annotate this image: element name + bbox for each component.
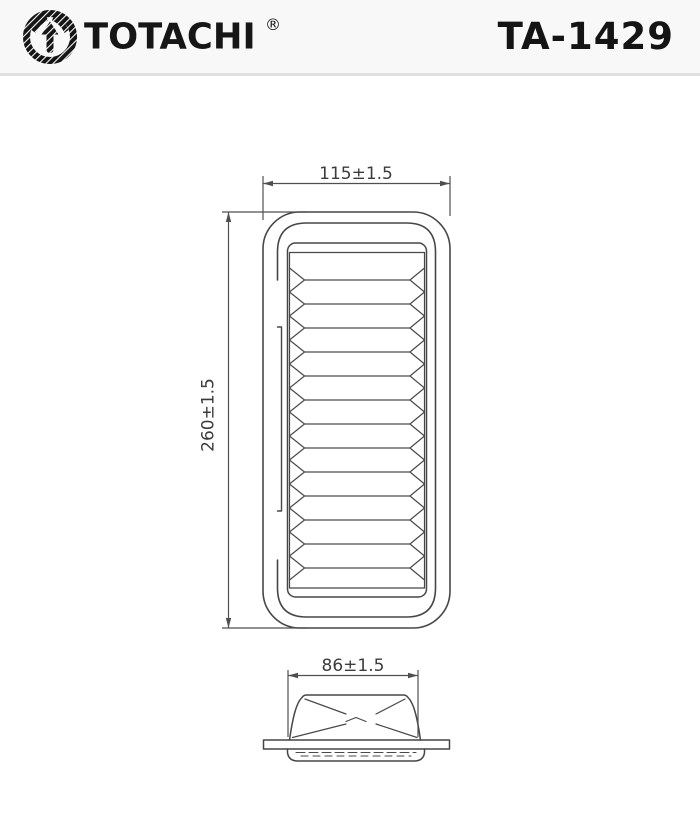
top-view xyxy=(263,212,450,628)
side-view-tray xyxy=(288,749,425,761)
totachi-emblem-icon xyxy=(22,9,78,65)
brand-name: TOTACHI xyxy=(84,19,256,55)
top-view-left-tab xyxy=(278,327,282,511)
top-view-outer-outline xyxy=(263,212,450,628)
side-view-creases xyxy=(293,699,418,738)
side-view xyxy=(264,695,450,761)
catalog-card: TOTACHI ® TA-1429 xyxy=(0,0,700,840)
brand-logo: TOTACHI ® xyxy=(22,9,281,65)
dim-height-260 xyxy=(222,212,307,628)
dim-height-label: 260±1.5 xyxy=(199,378,219,452)
filter-drawing: 115±1.5 260±1.5 xyxy=(0,79,700,840)
drawing-sheet: 115±1.5 260±1.5 xyxy=(0,79,700,840)
side-view-media-lines xyxy=(296,753,416,757)
media-edges xyxy=(290,253,425,589)
dim-depth-86 xyxy=(288,670,418,737)
part-number: TA-1429 xyxy=(498,18,674,55)
dim-width-label: 115±1.5 xyxy=(319,164,393,184)
pleat-pattern xyxy=(290,268,425,580)
dim-depth-label: 86±1.5 xyxy=(322,656,385,676)
header: TOTACHI ® TA-1429 xyxy=(0,0,700,76)
side-view-flange xyxy=(264,740,450,749)
registered-mark: ® xyxy=(265,15,281,34)
